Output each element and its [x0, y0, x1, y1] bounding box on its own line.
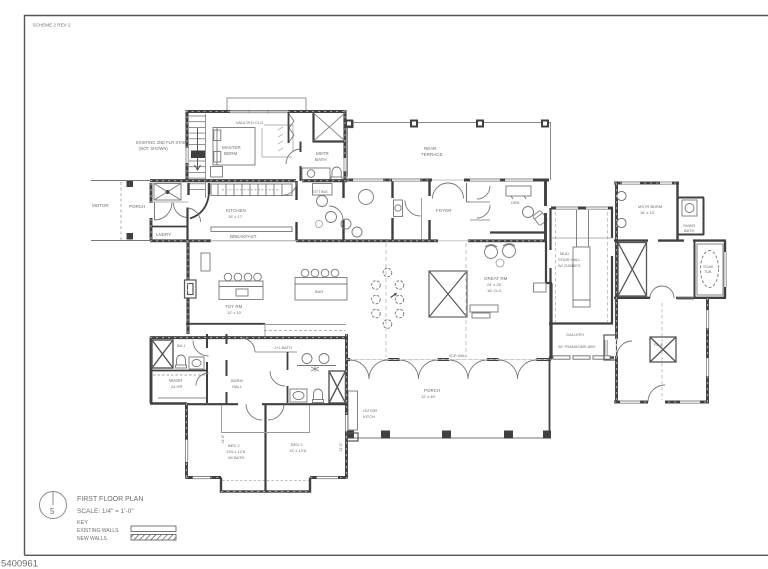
svg-text:W/ CUBBIES: W/ CUBBIES — [558, 264, 581, 268]
svg-text:(NOT SHOWN): (NOT SHOWN) — [139, 146, 168, 151]
svg-text:FOYER: FOYER — [436, 208, 452, 213]
svg-text:13' x 12'6: 13' x 12'6 — [289, 448, 307, 453]
svg-text:MOTOR: MOTOR — [92, 203, 109, 208]
svg-text:OUTDR: OUTDR — [363, 408, 377, 413]
svg-text:24 HR: 24 HR — [171, 384, 182, 389]
svg-text:GREAT RM: GREAT RM — [484, 276, 508, 281]
svg-text:SCALE: 1/4" = 1'-0": SCALE: 1/4" = 1'-0" — [77, 508, 134, 515]
svg-text:LNDRY: LNDRY — [156, 232, 171, 237]
svg-text:MUD: MUD — [560, 251, 569, 256]
svg-text:BATH: BATH — [684, 228, 694, 233]
svg-text:TERRACE: TERRACE — [421, 152, 443, 157]
svg-text:15' x 17': 15' x 17' — [228, 214, 243, 219]
svg-text:24' x 26': 24' x 26' — [487, 282, 502, 287]
svg-text:SCHEME 2 REV 2: SCHEME 2 REV 2 — [33, 23, 71, 28]
svg-text:BATH: BATH — [315, 157, 327, 162]
svg-text:BDRM: BDRM — [231, 378, 243, 383]
svg-text:12' x 10': 12' x 10' — [227, 310, 242, 315]
svg-text:12' x 40': 12' x 40' — [421, 394, 436, 399]
svg-text:KITCHEN: KITCHEN — [226, 208, 246, 213]
svg-text:5: 5 — [50, 507, 55, 516]
svg-text:VAULTED CLG: VAULTED CLG — [236, 120, 263, 125]
svg-text:BREAKFAST: BREAKFAST — [230, 234, 257, 239]
svg-text:SOAK: SOAK — [703, 265, 714, 269]
svg-text:FIRST FLOOR PLAN: FIRST FLOOR PLAN — [77, 496, 143, 503]
svg-text:SITTING: SITTING — [312, 189, 328, 194]
svg-text:STAIR HALL: STAIR HALL — [558, 257, 581, 262]
svg-text:KITCH: KITCH — [363, 414, 375, 419]
svg-text:GALLERY: GALLERY — [566, 332, 585, 337]
svg-text:KEY: KEY — [77, 520, 88, 526]
svg-text:W/ BATH: W/ BATH — [228, 455, 244, 460]
svg-text:18' CLG: 18' CLG — [487, 288, 502, 293]
svg-text:13'6 x 12'6: 13'6 x 12'6 — [226, 449, 246, 454]
svg-text:SCR WALL: SCR WALL — [449, 354, 467, 358]
svg-text:BED 3: BED 3 — [291, 442, 303, 447]
svg-text:EXISTING WALLS: EXISTING WALLS — [77, 528, 119, 534]
svg-text:HALL: HALL — [232, 384, 243, 389]
svg-text:WASH: WASH — [169, 378, 182, 383]
svg-text:MSTR BDRM: MSTR BDRM — [638, 204, 662, 209]
svg-text:NEW WALLS: NEW WALLS — [77, 536, 107, 542]
svg-text:13'-6": 13'-6" — [221, 434, 225, 444]
svg-text:PORCH: PORCH — [424, 388, 440, 393]
svg-text:DEN: DEN — [511, 200, 520, 205]
svg-text:BED 2: BED 2 — [228, 443, 240, 448]
svg-text:W/ TRANSOMS ABV: W/ TRANSOMS ABV — [558, 344, 596, 349]
svg-text:PORCH: PORCH — [129, 204, 145, 209]
svg-text:BA 1: BA 1 — [177, 343, 186, 348]
svg-text:13'-0": 13'-0" — [339, 442, 343, 452]
svg-text:EXISTING 2ND FLR STAIR: EXISTING 2ND FLR STAIR — [136, 140, 187, 145]
svg-text:MSTR: MSTR — [316, 151, 329, 156]
svg-text:BDRM: BDRM — [224, 151, 238, 156]
svg-text:REAR: REAR — [424, 146, 437, 151]
svg-text:MASTER: MASTER — [222, 145, 242, 150]
svg-text:TUB: TUB — [704, 270, 712, 274]
svg-text:TOY RM: TOY RM — [225, 304, 243, 309]
svg-text:J+J BATH: J+J BATH — [274, 345, 292, 350]
svg-text:16' x 15': 16' x 15' — [640, 210, 655, 215]
svg-text:5400961: 5400961 — [1, 559, 38, 569]
svg-text:BAR: BAR — [315, 289, 323, 294]
